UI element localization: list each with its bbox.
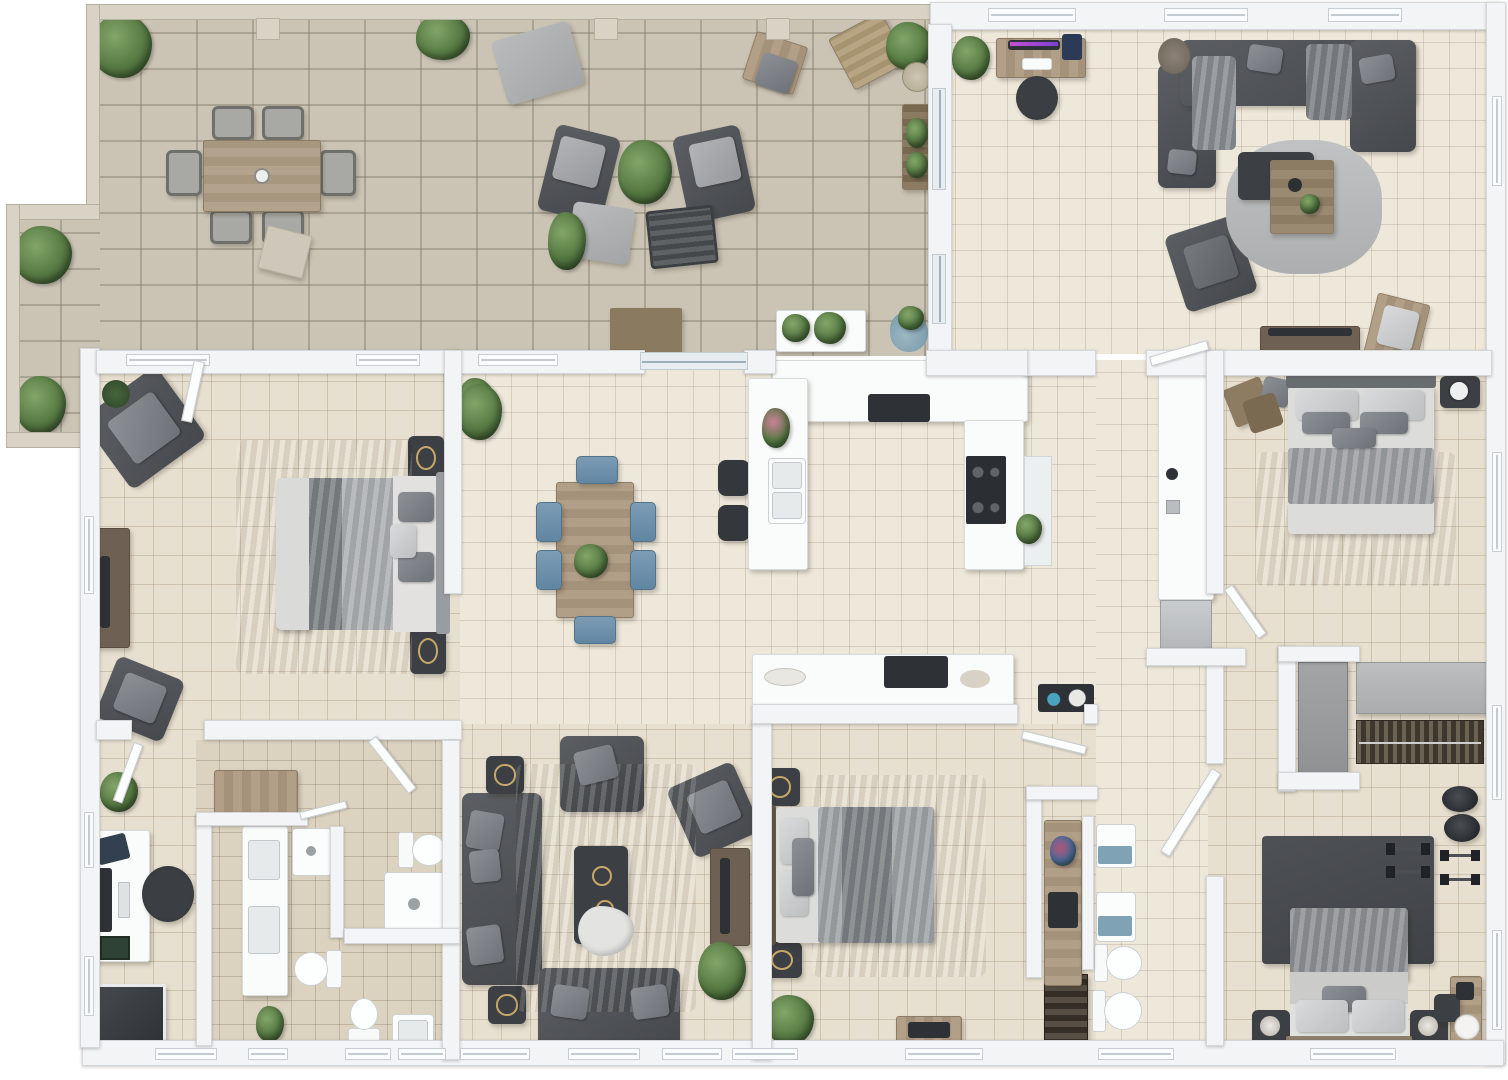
window xyxy=(398,1048,446,1060)
bedroom-plant xyxy=(766,995,814,1045)
sofa-throw xyxy=(1306,44,1352,120)
cabinet-panel xyxy=(1166,500,1180,514)
loveseat-pillow xyxy=(630,984,670,1021)
window xyxy=(478,354,558,366)
sink-towel xyxy=(1098,846,1132,864)
dumbbell xyxy=(1440,850,1480,861)
toilet-tank xyxy=(326,950,342,988)
wood-console xyxy=(214,770,298,814)
kitchen-plant xyxy=(1016,514,1042,544)
bar-stool xyxy=(718,460,750,496)
closet-wall xyxy=(1278,646,1296,792)
wall xyxy=(752,720,772,1060)
window xyxy=(1328,8,1402,22)
slatted-coffee-table xyxy=(645,205,719,270)
monitor-screen xyxy=(1010,42,1058,46)
table-plant xyxy=(1300,194,1320,214)
patio-post xyxy=(766,18,790,40)
loveseat-pillow xyxy=(550,984,590,1021)
table-fan xyxy=(1448,380,1470,402)
dining-chair xyxy=(536,502,562,542)
wall xyxy=(1084,704,1098,724)
tv-flat xyxy=(908,1022,950,1038)
patio-plant xyxy=(14,226,72,284)
wall xyxy=(204,720,462,740)
pouf xyxy=(1442,786,1478,812)
sofa-throw xyxy=(1192,56,1236,150)
planter-plant xyxy=(906,118,928,148)
patio-chair xyxy=(210,210,252,244)
bed-throw xyxy=(842,807,892,943)
sofa-pillow xyxy=(468,849,501,884)
desk-accessory xyxy=(1456,982,1474,1000)
closet-wardrobe xyxy=(1298,662,1348,776)
nightstand xyxy=(410,628,446,674)
wall xyxy=(752,704,1018,724)
shower-drain xyxy=(306,846,316,856)
wall xyxy=(1206,350,1224,594)
kitchen-hood xyxy=(868,394,930,422)
cabinet-handle xyxy=(1166,468,1178,480)
window xyxy=(662,1048,722,1060)
office-chair xyxy=(1016,76,1058,120)
patio-plant xyxy=(416,14,470,60)
picture-frame xyxy=(100,936,130,960)
bed-blanket xyxy=(309,478,343,630)
bed-pillow xyxy=(1296,1000,1348,1032)
bed-headboard xyxy=(1286,374,1436,388)
window xyxy=(568,1048,640,1060)
console-plate xyxy=(764,668,806,686)
gold-tray xyxy=(592,866,612,886)
dining-chair xyxy=(536,550,562,590)
bed-sheet xyxy=(276,478,310,630)
wall xyxy=(1024,350,1096,376)
bed-duvet xyxy=(342,478,394,630)
bath-plant xyxy=(256,1006,284,1042)
patio-tree xyxy=(92,14,152,78)
pouf xyxy=(1444,814,1480,842)
window xyxy=(84,956,94,1016)
patio-chair xyxy=(262,106,304,140)
exterior-wall-left xyxy=(80,348,100,1048)
toilet-bowl xyxy=(1106,946,1142,980)
bench-plant xyxy=(814,312,846,344)
tv-stand xyxy=(710,848,750,946)
living-plant xyxy=(698,942,746,1000)
toilet-bowl xyxy=(1104,992,1142,1030)
patio-chair xyxy=(166,150,202,196)
tv xyxy=(100,556,110,628)
kitchen-flowers xyxy=(762,408,790,448)
window xyxy=(1492,705,1502,800)
patio-plant xyxy=(16,376,66,434)
lounge-cushion xyxy=(688,136,742,189)
toilet-bowl xyxy=(350,998,378,1030)
closet-wall xyxy=(1278,772,1360,790)
sliding-glass-door xyxy=(932,88,946,190)
sofa-pillow xyxy=(1246,44,1284,75)
patio-chair xyxy=(212,106,254,140)
toilet-bowl xyxy=(294,952,328,986)
office-keyboard xyxy=(118,882,130,918)
dumbbell xyxy=(1440,874,1480,885)
window xyxy=(988,8,1076,22)
wall xyxy=(744,350,776,374)
console-bowl xyxy=(960,670,990,688)
desk-laptop xyxy=(1062,34,1082,60)
window xyxy=(1098,1048,1174,1060)
window xyxy=(155,1048,217,1060)
dining-chair xyxy=(576,456,618,484)
wall xyxy=(196,814,212,1046)
window xyxy=(84,812,94,868)
patio-wall xyxy=(6,204,100,220)
nightstand-lamp xyxy=(1260,1016,1280,1036)
toilet-bowl xyxy=(412,834,446,866)
patio-plant xyxy=(548,212,586,270)
living-plant xyxy=(952,36,990,80)
cooktop xyxy=(966,456,1006,524)
bed-duvet xyxy=(1290,908,1408,980)
window xyxy=(1164,8,1248,22)
sofa-pillow xyxy=(466,924,505,966)
table-vase xyxy=(1288,178,1302,192)
patio-post xyxy=(594,18,618,40)
patio-wall xyxy=(86,4,937,20)
patio-wall xyxy=(6,204,20,448)
vanity-flowers xyxy=(1050,836,1076,866)
patio-post xyxy=(256,18,280,40)
floor-plan xyxy=(0,0,1508,1080)
wall xyxy=(1026,786,1042,978)
planter-plant xyxy=(906,152,928,178)
dining-centerpiece xyxy=(574,544,608,578)
wall xyxy=(196,812,308,826)
nightstand-lamp xyxy=(1418,1016,1438,1036)
patio-wall xyxy=(86,4,100,218)
wall xyxy=(926,350,1028,376)
dining-plant xyxy=(458,384,502,440)
sofa-pillow xyxy=(465,809,505,852)
vase-leaves xyxy=(898,306,924,330)
bed-pillow-accent xyxy=(1332,428,1376,448)
bar-stool xyxy=(718,505,750,541)
sink-basin xyxy=(772,492,802,519)
bed-pillow xyxy=(398,492,434,522)
bed-pillow xyxy=(390,524,416,558)
desk-papers xyxy=(1022,58,1052,70)
window xyxy=(460,1048,530,1060)
window xyxy=(84,516,94,594)
window xyxy=(356,354,420,366)
bed-pillow-dark xyxy=(792,838,814,896)
sink-towel xyxy=(1098,916,1132,936)
wall xyxy=(1146,350,1492,376)
window xyxy=(345,1048,391,1060)
desk-lamp xyxy=(1454,1014,1480,1040)
round-side-table xyxy=(1158,38,1190,74)
wall xyxy=(96,720,132,740)
vanity-box xyxy=(1048,892,1078,928)
dumbbell xyxy=(1386,843,1430,855)
wall xyxy=(442,740,460,1060)
window xyxy=(1310,1048,1396,1060)
wall xyxy=(1026,786,1098,800)
dumbbell xyxy=(1386,866,1430,878)
wall xyxy=(1082,816,1094,970)
bench-plant xyxy=(782,314,810,342)
bed-duvet xyxy=(1288,448,1434,504)
window xyxy=(1492,96,1502,186)
window xyxy=(248,1048,288,1060)
tv xyxy=(720,858,730,934)
sliding-glass-door xyxy=(932,254,946,324)
closet-wall xyxy=(1278,646,1360,662)
doormat xyxy=(610,308,682,354)
wall xyxy=(1206,876,1224,1046)
patio-wall xyxy=(6,432,90,448)
patio-plant xyxy=(618,140,672,204)
tv xyxy=(1268,328,1352,336)
wall xyxy=(344,928,460,944)
sliding-door xyxy=(640,352,748,370)
sofa-pillow xyxy=(1167,149,1197,176)
console-appliance xyxy=(884,656,948,688)
plant-stand xyxy=(102,380,130,408)
wall xyxy=(330,826,344,938)
dishwasher-panel xyxy=(1024,456,1052,566)
vanity-sink xyxy=(248,906,280,954)
office-monitor xyxy=(98,868,112,932)
table-centerpiece xyxy=(254,168,270,184)
dining-chair xyxy=(630,502,656,542)
shower-drain xyxy=(408,898,420,910)
dining-chair xyxy=(630,550,656,590)
wall xyxy=(444,350,462,594)
closet-cabinet-strip xyxy=(1356,662,1488,714)
window xyxy=(905,1048,983,1060)
dining-chair xyxy=(574,616,616,644)
wall xyxy=(1146,648,1246,666)
window xyxy=(732,1048,798,1060)
clothes-rail xyxy=(1356,720,1484,764)
window xyxy=(1492,452,1502,552)
sink-basin xyxy=(772,462,802,489)
office-chair xyxy=(142,866,194,922)
patio-chair xyxy=(320,150,356,196)
bed-pillow xyxy=(1352,1000,1404,1032)
window xyxy=(1492,930,1502,1030)
vanity-sink xyxy=(248,840,280,880)
